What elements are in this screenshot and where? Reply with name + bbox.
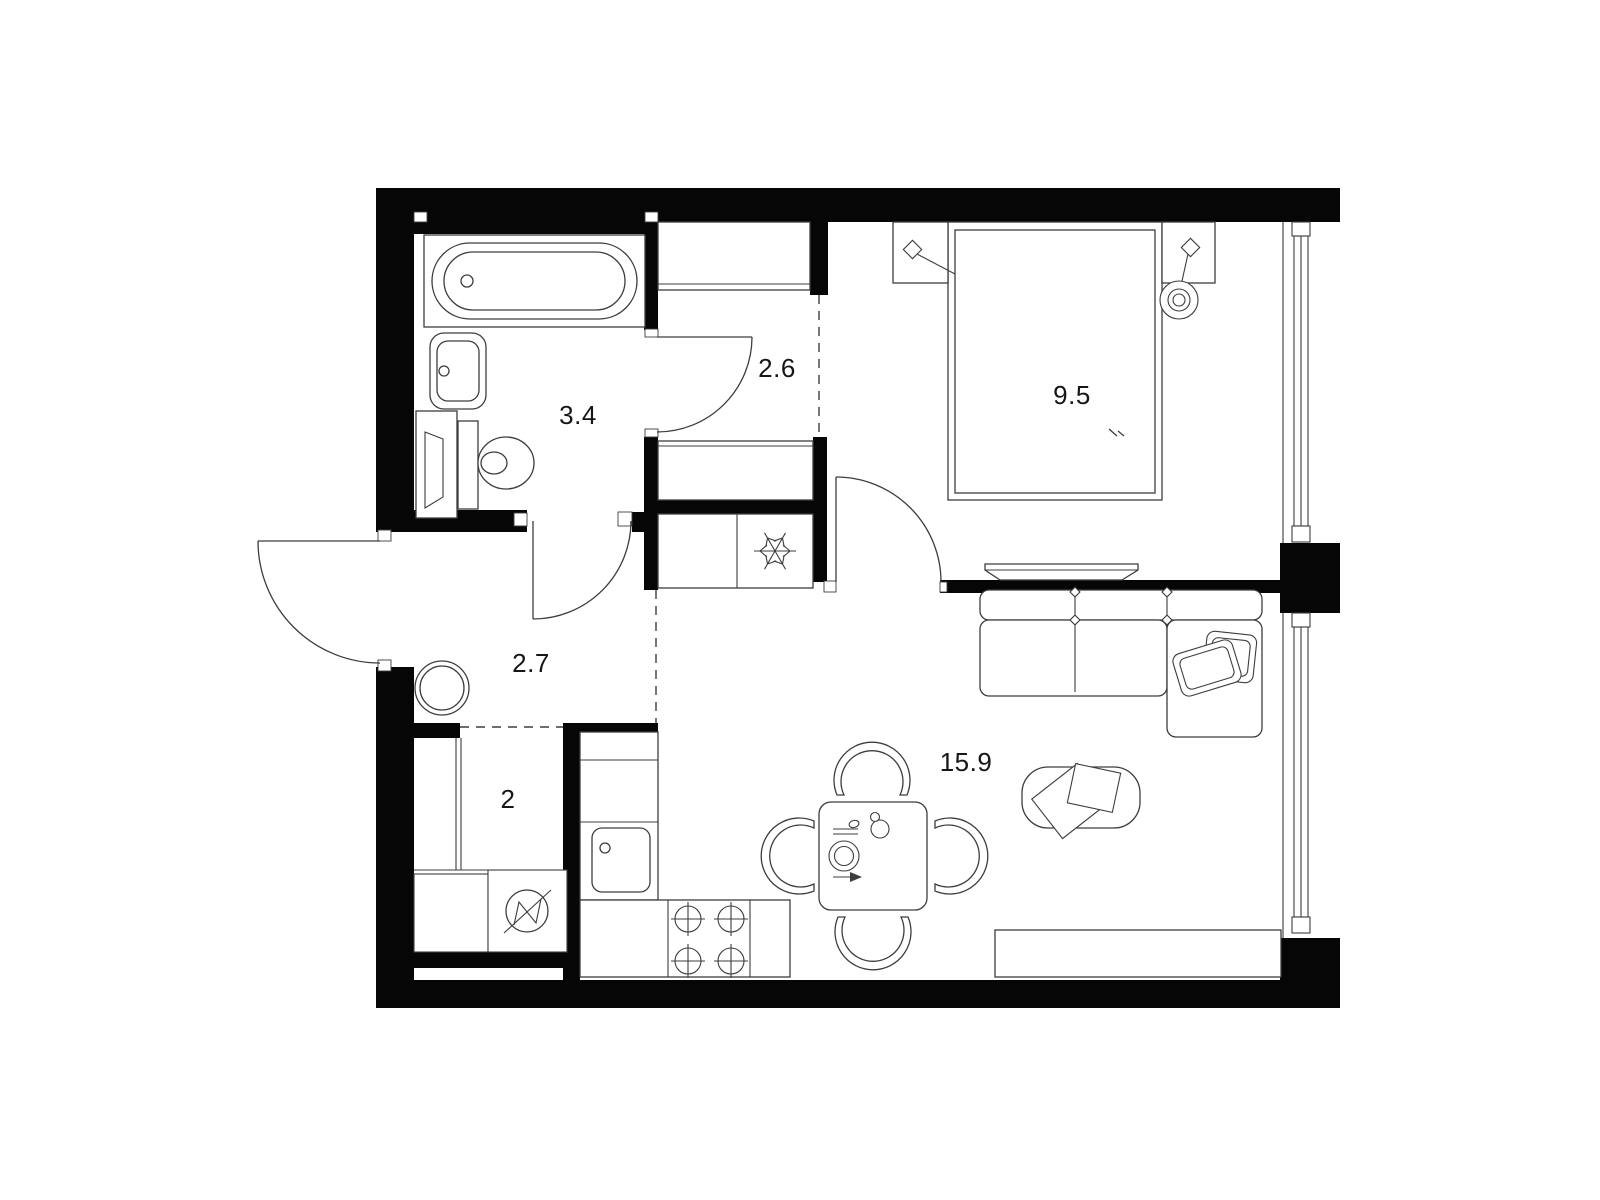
vanity-inner [425,432,443,508]
sink-icon [430,333,486,409]
entry-hall-furniture [415,661,469,715]
window-end-cap [1292,917,1310,933]
wall-bath-bottom-stub [632,512,645,532]
kitchen-sink-icon [592,828,650,892]
lamp-base-core [1173,294,1185,306]
window-end-cap [1292,526,1310,542]
sofa-backrest [980,590,1262,620]
bathtub-basin [444,252,625,310]
sofa-seats [980,620,1167,696]
room-label-storage: 2 [501,784,516,814]
cup [871,820,889,838]
wall-storage-top [398,723,460,738]
wall-hall-bedroom-lower [813,437,827,502]
window-end-cap [1292,613,1310,627]
wardrobe-outline [658,222,810,290]
toilet-bowl-inner [481,452,507,474]
wardrobe-bottom [658,441,813,500]
room-label-kitchen-living: 15.9 [940,747,993,777]
sideboard [995,930,1281,977]
wall-left-upper [376,188,414,532]
bathroom-door-arc [533,521,631,619]
wall-corner-bottom-right [1280,938,1340,1008]
wall-fridge-top [645,500,827,514]
fridge-unit [658,514,813,588]
floorplan-svg: 3.4 2.6 9.5 2.7 2 15.9 [0,0,1600,1200]
kitchen-counters [580,732,790,978]
round-stool-inner [420,666,464,710]
counter-bottom [580,900,790,977]
room-label-bathroom: 3.4 [559,400,597,430]
hall-storage [658,222,813,588]
jamb-notch [378,660,391,671]
jamb-notch [414,212,427,222]
jamb-notch [378,530,391,541]
cup-handle [871,813,880,822]
toilet-icon [458,421,534,509]
plate-inner [835,847,854,866]
chair-icon [935,818,988,894]
jamb-notch [940,582,947,592]
window-end-cap [1292,222,1310,236]
wall-bath-right-upper [644,222,658,330]
storage-room [414,738,567,952]
corner-sofa-icon [980,587,1262,737]
nightstand-left [893,222,948,283]
bathtub-icon [424,235,645,327]
tv-icon [985,564,1138,580]
wall-window-pier [1280,543,1340,613]
chair-icon [834,742,910,795]
jamb-notch [645,429,658,437]
kitchen-sink-basin [592,828,650,892]
double-bed-icon [948,222,1162,500]
wall-storage-bottom [398,952,563,968]
washing-machine-icon [488,870,567,952]
room-label-bedroom: 9.5 [1053,380,1091,410]
floorplan-canvas: 3.4 2.6 9.5 2.7 2 15.9 [0,0,1600,1200]
entrance-door-arc [258,541,380,663]
wall-left-lower [376,667,414,982]
wall-top-bath-strip [376,222,658,234]
wardrobe-top [658,222,810,290]
bathroom-fixtures [416,235,645,518]
toilet-tank [458,421,478,509]
jamb-notch [824,581,836,592]
jamb-notch [618,512,632,526]
vanity-cabinet [416,411,457,518]
bed-mattress [955,230,1155,493]
wall-hall-bedroom-upper [810,222,828,295]
bedroom-door-arc [836,477,941,582]
living-room-furniture [761,587,1281,977]
room-label-hall-entry: 2.7 [512,648,550,678]
sink-basin [437,341,479,401]
chair-icon [835,917,911,970]
storage-shelf-box [414,874,488,952]
room-label-hall-upper: 2.6 [758,353,796,383]
chair-icon [761,818,814,894]
wall-bottom [376,980,1340,1008]
wall-top [376,188,1340,222]
jamb-notch [514,513,527,526]
wall-fridge-right [813,514,827,582]
doors [258,337,941,663]
jamb-notch [645,329,658,337]
jamb-notch [645,212,658,222]
wardrobe-outline [658,441,813,500]
tv-panel [985,564,1138,580]
hall-door-arc [657,337,752,432]
coffee-table-icon [1022,763,1140,838]
book [1067,764,1120,813]
